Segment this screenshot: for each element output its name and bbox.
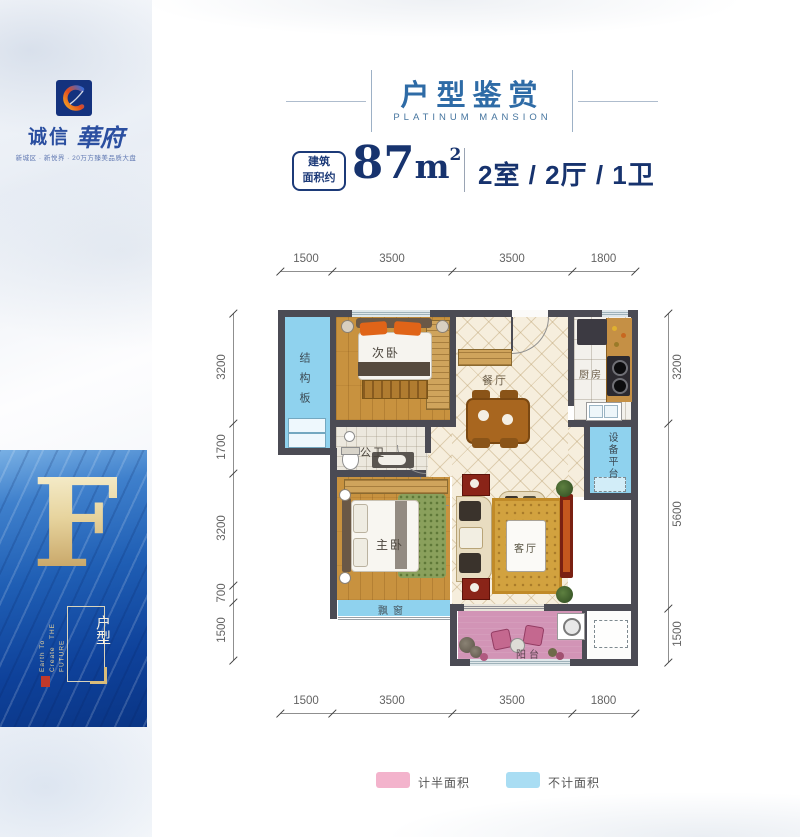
brand-logo-icon xyxy=(56,80,92,116)
bed2-pillow-left xyxy=(360,321,388,336)
dim-value: 1800 xyxy=(572,695,635,707)
corridor-floor xyxy=(428,427,452,477)
dining-plate xyxy=(478,410,489,421)
wall-bedroom2-dining xyxy=(450,310,456,427)
wall-structure-bottom xyxy=(278,448,336,455)
wall-equipment-left xyxy=(584,427,590,500)
wall-kitchen-bottom xyxy=(568,420,638,427)
washing-machine-door xyxy=(563,618,581,636)
wall-equipment-bottom xyxy=(584,493,638,500)
wall-balcony-left xyxy=(450,604,457,666)
nightstand-left xyxy=(341,320,354,333)
sink-basin xyxy=(589,405,603,418)
dim-value: 1800 xyxy=(572,253,635,265)
kitchen-jar xyxy=(612,326,617,331)
marble-wisp xyxy=(150,760,800,837)
wall-kitchen-left xyxy=(568,310,574,406)
master-pillow xyxy=(353,504,368,533)
brand-name-cn1: 诚信 xyxy=(28,127,70,148)
sink-basin xyxy=(604,405,618,418)
tv-console-top xyxy=(563,500,570,572)
slogan-english: Earth To Create THE FUTURE xyxy=(38,608,67,672)
bed2-pillow-right xyxy=(394,321,422,336)
dining-chair xyxy=(500,438,518,448)
header-bar-right xyxy=(572,70,573,132)
rooms-count: 2室 / 2厅 / 1卫 xyxy=(478,155,655,192)
wall-right xyxy=(631,310,638,666)
master-pillow xyxy=(353,538,368,567)
ac-unit-box xyxy=(288,433,326,448)
kitchen-jar xyxy=(614,342,619,347)
master-lamp xyxy=(339,572,351,584)
area-badge-line1: 建筑 xyxy=(294,155,344,171)
brand-name-cn2: 華府 xyxy=(76,123,124,152)
label-living: 客厅 xyxy=(514,540,538,555)
label-bay-window: 飘窗 xyxy=(378,602,408,617)
flyer-canvas: 诚信華府 新城区 · 新悦界 · 20万方臻美品质大盘 F Earth To C… xyxy=(0,0,800,837)
bed2-bench xyxy=(362,380,428,399)
unit-type-box: 户型 xyxy=(67,606,105,682)
shoe-cabinet xyxy=(458,349,512,366)
gold-corner-accent xyxy=(90,667,107,684)
dim-value: 3500 xyxy=(452,695,572,707)
kitchen-jar xyxy=(621,333,626,338)
label-second-bedroom: 次卧 xyxy=(372,344,400,361)
balcony-chair xyxy=(522,624,544,646)
ac-outdoor-unit xyxy=(594,620,628,648)
dim-value: 1500 xyxy=(280,695,332,707)
stove-burner xyxy=(612,378,628,394)
dim-value: 3500 xyxy=(452,253,572,265)
header-bar-left xyxy=(371,70,372,132)
slogan-en-line1: Earth To Create xyxy=(39,640,56,672)
dim-value: 700 xyxy=(216,573,228,613)
area-unit: m xyxy=(415,147,450,186)
page-subtitle: PLATINUM MANSION xyxy=(380,112,565,123)
window-kitchen xyxy=(602,310,628,317)
window-second-bedroom xyxy=(352,310,430,317)
dining-chair xyxy=(472,438,490,448)
seal-stamp xyxy=(41,676,50,687)
plant xyxy=(556,480,573,497)
area-value: 87m2 xyxy=(352,140,461,185)
dim-value: 3200 xyxy=(216,347,228,387)
end-table-decor xyxy=(470,583,479,592)
balcony-flower xyxy=(480,653,488,661)
area-number: 87 xyxy=(352,136,415,189)
dining-plate xyxy=(502,414,513,425)
stove-burner xyxy=(612,360,628,376)
sofa-cushion xyxy=(459,553,481,573)
ac-unit-box xyxy=(288,418,326,433)
area-badge: 建筑 面积约 xyxy=(292,151,346,191)
bed2-foot-throw xyxy=(358,362,430,376)
label-bathroom: 公卫 xyxy=(360,444,386,460)
label-master-bedroom: 主卧 xyxy=(376,536,404,553)
summary-divider xyxy=(464,148,465,192)
wall-structure-right xyxy=(330,310,336,455)
dim-line-left xyxy=(233,313,234,660)
brand-tagline: 新城区 · 新悦界 · 20万方臻美品质大盘 xyxy=(0,152,152,162)
area-badge-line2: 面积约 xyxy=(294,171,344,187)
dim-value: 3500 xyxy=(332,695,452,707)
toilet-tank xyxy=(341,447,360,455)
dim-value: 3200 xyxy=(216,508,228,548)
sidebar-marble-panel: 诚信華府 新城区 · 新悦界 · 20万方臻美品质大盘 F Earth To C… xyxy=(0,0,152,837)
label-kitchen: 厨房 xyxy=(579,366,603,381)
wall-left-upper xyxy=(278,310,285,455)
master-lamp xyxy=(339,489,351,501)
wardrobe-master xyxy=(344,479,448,494)
master-headboard xyxy=(342,498,351,572)
fridge xyxy=(577,319,607,345)
label-equipment-platform: 设备平台 xyxy=(604,432,619,480)
page-title: 户型鉴赏 xyxy=(380,72,565,114)
dim-value: 3200 xyxy=(672,347,684,387)
balcony-flower xyxy=(556,652,564,660)
brand-name: 诚信華府 xyxy=(0,118,152,153)
dim-value: 5600 xyxy=(672,494,684,534)
dim-value: 1700 xyxy=(216,427,228,467)
nightstand-right xyxy=(436,320,449,333)
end-table-decor xyxy=(470,479,479,488)
dim-value: 3500 xyxy=(332,253,452,265)
entry-opening xyxy=(512,310,548,317)
balcony-slider-door xyxy=(464,604,544,611)
sofa-cushion xyxy=(459,527,483,549)
dim-value: 1500 xyxy=(672,614,684,654)
label-structure-board: 结构板 xyxy=(296,352,312,412)
dim-value: 1500 xyxy=(280,253,332,265)
shower-head xyxy=(344,431,355,442)
area-exponent: 2 xyxy=(450,145,462,165)
wall-bedroom2-bath xyxy=(330,420,456,427)
marble-wisp xyxy=(150,0,800,60)
label-balcony: 阳台 xyxy=(516,646,542,661)
header-rule-right xyxy=(578,101,658,102)
dim-value: 1500 xyxy=(216,610,228,650)
master-foot-throw xyxy=(395,501,407,569)
sofa-cushion xyxy=(459,501,481,521)
plant xyxy=(556,586,573,603)
unit-letter: F xyxy=(32,462,119,584)
label-dining: 餐厅 xyxy=(482,372,508,388)
header-rule-left xyxy=(286,101,366,102)
unit-type-label: 户型 xyxy=(78,615,114,645)
